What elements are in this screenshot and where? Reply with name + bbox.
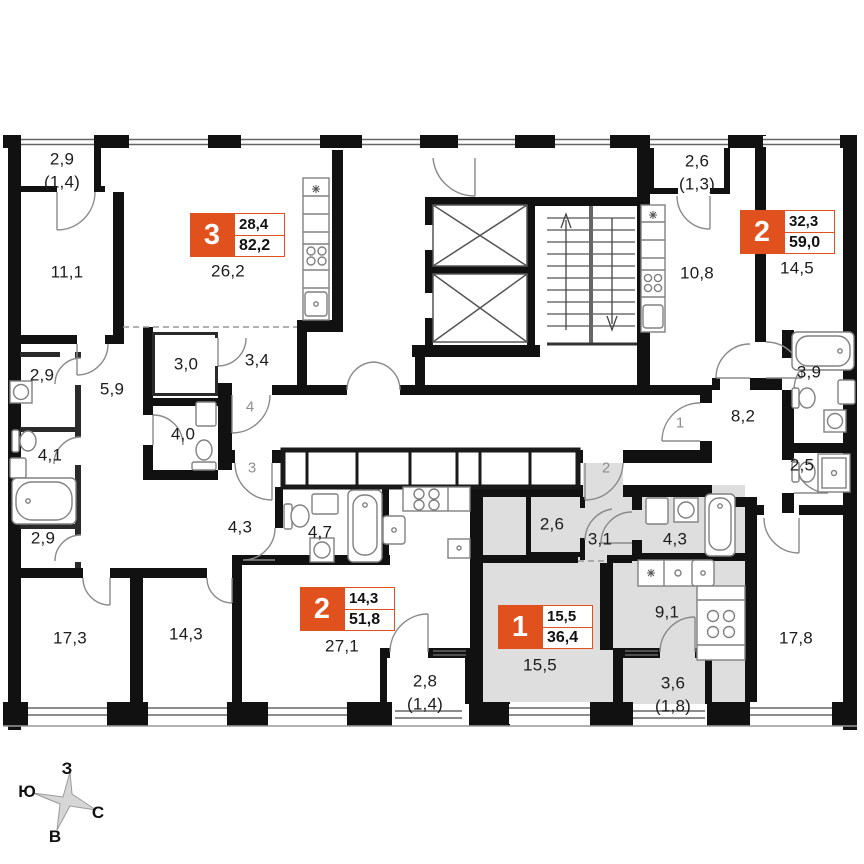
total-area-value: 36,4 [543,627,592,649]
total-area-value: 51,8 [345,609,394,631]
room-area-label: (1,4) [407,696,443,713]
room-area-label: 27,1 [325,638,359,655]
fridge-icon [647,569,655,577]
apartment-rooms-count: 3 [190,213,234,257]
fridge-icon [649,211,657,219]
toilet-icon [284,504,309,529]
compass-north-label: С [92,803,104,823]
apartment-badge: 115,536,4 [498,605,593,649]
compass-west-label: З [62,759,73,779]
apartment-badge: 232,359,0 [740,210,835,254]
room-area-label: 3,4 [245,352,269,369]
sink-icon [305,292,327,316]
compass-rose [33,772,96,830]
sink-icon [312,494,338,514]
sink-icon [10,458,26,478]
washer-icon [674,498,698,522]
elevator-shafts [433,205,527,342]
apartment-rooms-count: 2 [740,210,784,254]
room-area-label: 9,1 [655,604,679,621]
floor-plan: 2,9(1,4)11,126,22,6(1,3)10,814,52,95,93,… [0,0,864,864]
room-area-label: 5,9 [100,381,124,398]
room-area-label: 4,0 [171,426,195,443]
floor-plan-drawing [0,0,864,864]
washer-icon [10,381,32,403]
room-area-label: 14,5 [780,260,814,277]
sink-icon [692,560,714,586]
room-area-label: 2,6 [685,153,709,170]
washer-icon [310,538,334,562]
unit-door-number: 3 [248,461,256,476]
room-area-label: 3,9 [797,364,821,381]
room-area-label: 3,6 [661,675,685,692]
sink-icon [646,498,668,524]
apartment-badge: 328,482,2 [190,213,285,257]
toilet-icon [12,430,36,452]
sink-icon [838,380,855,404]
washer-icon [824,410,846,432]
sink-icon [383,516,405,544]
total-area-value: 82,2 [235,235,284,257]
room-area-label: 2,9 [30,367,54,384]
toilet-icon [192,440,216,470]
room-area-label: 2,9 [31,530,55,547]
compass-east-label: В [49,827,61,847]
room-area-label: 2,9 [50,151,74,168]
apartment-areas-box: 14,351,8 [344,587,395,631]
sink-icon [196,402,216,426]
apartment-rooms-count: 2 [300,587,344,631]
apartment-areas-box: 32,359,0 [784,210,835,254]
room-area-label: 17,8 [779,630,813,647]
corridor-storage-cells [283,450,578,487]
staircase [547,206,637,344]
room-area-label: 4,3 [228,519,252,536]
compass-south-label: Ю [18,782,36,802]
unit-door-number: 4 [246,400,254,415]
room-area-label: 3,1 [588,531,612,548]
living-area-value: 32,3 [785,211,834,232]
room-area-label: 4,3 [663,531,687,548]
fridge-icon [312,185,320,193]
bathtub-icon [12,478,76,524]
apartment-areas-box: 15,536,4 [542,605,593,649]
room-area-label: 2,8 [413,673,437,690]
toilet-icon [792,388,815,408]
room-area-label: 17,3 [53,630,87,647]
room-area-label: 4,7 [308,524,332,541]
room-area-label: 26,2 [211,263,245,280]
room-area-label: 3,0 [174,356,198,373]
living-area-value: 15,5 [543,606,592,627]
sink-icon [643,305,663,328]
room-area-label: (1,3) [679,176,715,193]
room-area-label: 15,5 [523,657,557,674]
living-area-value: 28,4 [235,214,284,235]
shower-icon [818,454,850,492]
living-area-value: 14,3 [345,588,394,609]
room-area-label: 10,8 [680,265,714,282]
room-area-label: 4,1 [38,447,62,464]
room-area-label: (1,8) [655,698,691,715]
room-area-label: 2,5 [790,457,814,474]
room-area-label: 14,3 [169,626,203,643]
apartment-rooms-count: 1 [498,605,542,649]
total-area-value: 59,0 [785,232,834,254]
room-area-label: (1,4) [44,174,80,191]
room-area-label: 8,2 [731,408,755,425]
unit-door-number: 1 [676,416,684,431]
room-area-label: 2,6 [540,516,564,533]
unit-door-number: 2 [602,461,610,476]
apartment-badge: 214,351,8 [300,587,395,631]
apartment-areas-box: 28,482,2 [234,213,285,257]
room-area-label: 11,1 [51,264,84,281]
